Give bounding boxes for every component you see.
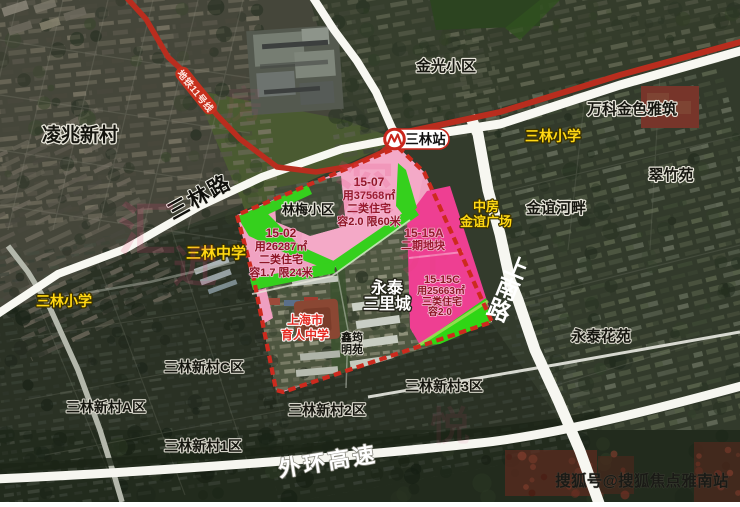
svg-text:悦: 悦 bbox=[430, 405, 470, 449]
svg-text:三林新村2区: 三林新村2区 bbox=[288, 402, 366, 418]
svg-text:近: 近 bbox=[173, 243, 217, 292]
svg-text:汇: 汇 bbox=[118, 198, 176, 263]
svg-text:深: 深 bbox=[335, 158, 395, 225]
svg-text:三林小学: 三林小学 bbox=[36, 293, 92, 309]
svg-text:用26287㎡: 用26287㎡ bbox=[255, 239, 308, 253]
svg-text:三林站: 三林站 bbox=[405, 131, 446, 147]
svg-text:容1.7 限24米: 容1.7 限24米 bbox=[248, 265, 314, 279]
svg-text:三林小学: 三林小学 bbox=[525, 128, 581, 144]
svg-text:三林新村1区: 三林新村1区 bbox=[164, 438, 242, 454]
svg-text:金光小区: 金光小区 bbox=[415, 57, 476, 75]
svg-text:房: 房 bbox=[225, 85, 263, 127]
svg-text:永泰: 永泰 bbox=[370, 278, 404, 297]
svg-text:中房: 中房 bbox=[473, 199, 499, 214]
svg-text:林梅小区: 林梅小区 bbox=[282, 202, 334, 217]
svg-text:金谊河畔: 金谊河畔 bbox=[525, 199, 586, 217]
svg-text:三里城: 三里城 bbox=[363, 295, 411, 313]
svg-text:界: 界 bbox=[398, 222, 450, 280]
svg-text:永泰花苑: 永泰花苑 bbox=[570, 327, 631, 345]
svg-text:育人中学: 育人中学 bbox=[281, 327, 329, 342]
svg-text:三林新村A区: 三林新村A区 bbox=[66, 399, 146, 415]
svg-text:明苑: 明苑 bbox=[341, 342, 363, 356]
svg-text:万科金色雅筑: 万科金色雅筑 bbox=[586, 100, 677, 118]
svg-text:15-02: 15-02 bbox=[266, 226, 297, 240]
svg-text:二类住宅: 二类住宅 bbox=[259, 252, 303, 266]
svg-text:上海市: 上海市 bbox=[287, 312, 323, 327]
svg-text:翠竹苑: 翠竹苑 bbox=[648, 166, 693, 184]
svg-text:搜狐号@搜狐焦点雅南站: 搜狐号@搜狐焦点雅南站 bbox=[555, 471, 729, 490]
svg-text:金谊广场: 金谊广场 bbox=[459, 214, 512, 229]
svg-text:容2.0: 容2.0 bbox=[427, 305, 452, 318]
svg-text:鑫筠: 鑫筠 bbox=[340, 330, 363, 344]
svg-text:凌兆新村: 凌兆新村 bbox=[42, 123, 118, 146]
svg-text:三林新村3区: 三林新村3区 bbox=[405, 378, 483, 394]
svg-text:用25663㎡: 用25663㎡ bbox=[416, 284, 465, 297]
svg-text:三林新村C区: 三林新村C区 bbox=[164, 359, 244, 375]
